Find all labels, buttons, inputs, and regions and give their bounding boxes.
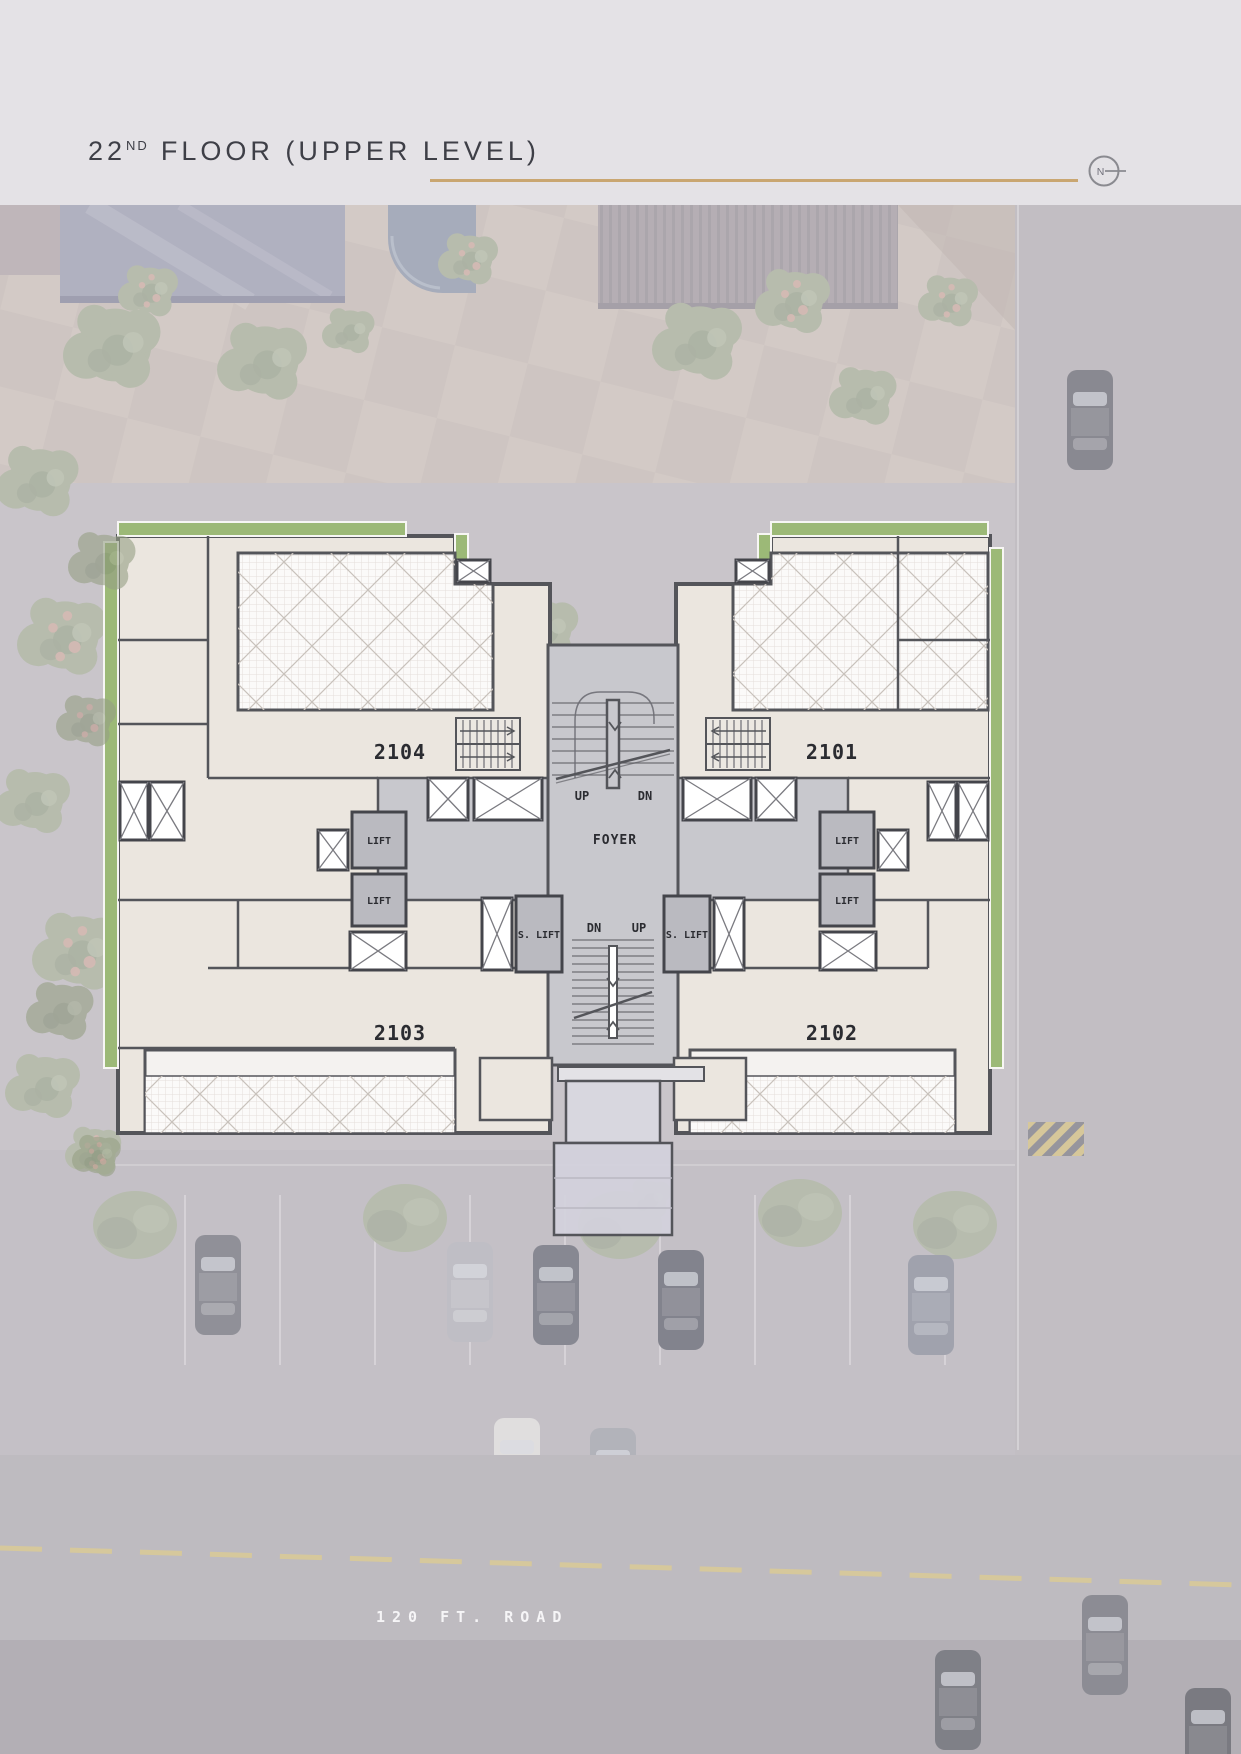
compass-letter: N [1097, 166, 1105, 178]
floor-plan: 2104 2101 2103 2102 UP DN FOYER DN UP LI… [88, 478, 1018, 1268]
terrace-top-right [733, 553, 988, 710]
unit-label-2101: 2101 [806, 740, 858, 764]
service-lift-label-right: S. LIFT [666, 930, 708, 941]
terrace-bottom-left [145, 1050, 455, 1133]
floor-number: 22 [88, 136, 126, 166]
page-title: 22NDFLOOR (UPPER LEVEL) [88, 136, 540, 167]
up-label-top: UP [575, 789, 589, 803]
unit-label-2102: 2102 [806, 1021, 858, 1045]
dn-label-top: DN [638, 789, 652, 803]
floor-ordinal: ND [126, 138, 149, 153]
lift-label-right-2: LIFT [835, 896, 859, 907]
entrance-atrium [480, 1058, 746, 1235]
dn-label-bottom: DN [587, 921, 601, 935]
title-underline [430, 179, 1078, 182]
up-label-bottom: UP [632, 921, 646, 935]
lift-label-left-2: LIFT [367, 896, 391, 907]
north-compass-icon: N [1084, 150, 1132, 194]
foyer-label: FOYER [593, 833, 637, 848]
terrace-top-left [238, 553, 493, 710]
page-header: 22NDFLOOR (UPPER LEVEL) N [0, 0, 1241, 205]
lift-block-right [820, 812, 874, 926]
service-lift-label-left: S. LIFT [518, 930, 560, 941]
unit-label-2104: 2104 [374, 740, 426, 764]
unit-label-2103: 2103 [374, 1021, 426, 1045]
brochure-page: 22NDFLOOR (UPPER LEVEL) N [0, 0, 1241, 1754]
road-label: 120 FT. ROAD [376, 1608, 568, 1626]
stair-left [456, 718, 520, 770]
floor-title-text: FLOOR (UPPER LEVEL) [161, 136, 540, 166]
lift-block-left [352, 812, 406, 926]
lift-label-left-1: LIFT [367, 836, 391, 847]
lift-label-right-1: LIFT [835, 836, 859, 847]
stair-right [706, 718, 770, 770]
